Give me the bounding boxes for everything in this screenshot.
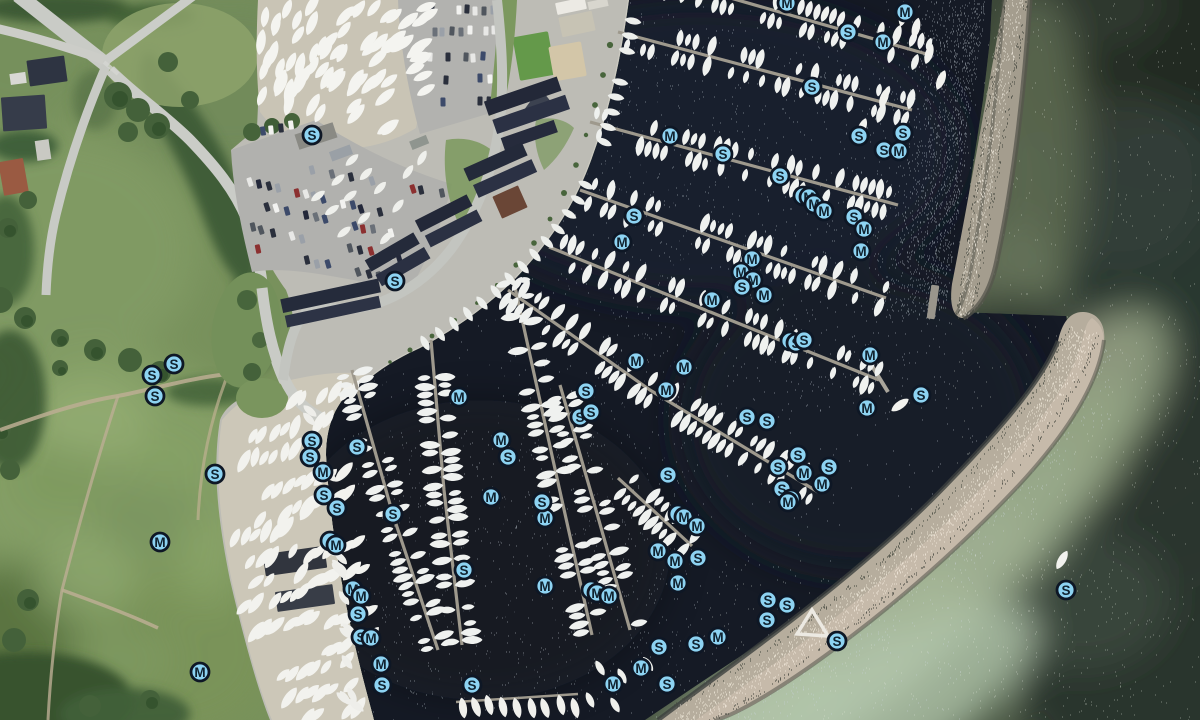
svg-text:S: S <box>799 333 808 348</box>
svg-text:S: S <box>147 368 156 383</box>
svg-text:M: M <box>453 390 464 405</box>
svg-text:M: M <box>355 589 366 604</box>
svg-text:M: M <box>365 631 376 646</box>
svg-text:M: M <box>818 204 829 219</box>
svg-text:S: S <box>737 280 746 295</box>
svg-text:S: S <box>854 129 863 144</box>
svg-text:M: M <box>664 129 675 144</box>
svg-text:S: S <box>782 598 791 613</box>
svg-text:S: S <box>879 143 888 158</box>
svg-text:S: S <box>503 450 512 465</box>
svg-text:M: M <box>691 519 702 534</box>
svg-text:S: S <box>843 25 852 40</box>
svg-text:M: M <box>712 630 723 645</box>
svg-text:S: S <box>662 677 671 692</box>
svg-text:S: S <box>353 607 362 622</box>
svg-text:M: M <box>375 657 386 672</box>
svg-text:M: M <box>603 589 614 604</box>
svg-text:S: S <box>305 450 314 465</box>
svg-text:M: M <box>877 35 888 50</box>
svg-text:M: M <box>816 477 827 492</box>
svg-text:M: M <box>855 244 866 259</box>
svg-text:S: S <box>210 467 219 482</box>
svg-text:M: M <box>317 465 328 480</box>
svg-text:S: S <box>807 80 816 95</box>
svg-text:S: S <box>169 357 178 372</box>
svg-text:S: S <box>332 501 341 516</box>
svg-text:M: M <box>678 360 689 375</box>
svg-text:S: S <box>1061 583 1070 598</box>
svg-text:S: S <box>377 678 386 693</box>
svg-text:S: S <box>654 640 663 655</box>
svg-text:S: S <box>150 389 159 404</box>
svg-text:S: S <box>718 147 727 162</box>
svg-text:S: S <box>693 551 702 566</box>
svg-text:S: S <box>824 460 833 475</box>
svg-text:S: S <box>775 169 784 184</box>
svg-text:M: M <box>330 538 341 553</box>
svg-text:S: S <box>390 274 399 289</box>
svg-text:S: S <box>832 634 841 649</box>
svg-text:S: S <box>742 410 751 425</box>
svg-text:S: S <box>537 495 546 510</box>
svg-text:M: M <box>495 433 506 448</box>
svg-text:M: M <box>893 144 904 159</box>
svg-text:M: M <box>672 576 683 591</box>
svg-text:S: S <box>629 209 638 224</box>
svg-text:S: S <box>898 126 907 141</box>
svg-text:S: S <box>663 468 672 483</box>
svg-text:M: M <box>660 383 671 398</box>
svg-text:M: M <box>864 348 875 363</box>
svg-text:M: M <box>635 661 646 676</box>
svg-text:M: M <box>539 511 550 526</box>
svg-text:M: M <box>607 677 618 692</box>
svg-text:M: M <box>652 544 663 559</box>
svg-text:M: M <box>798 466 809 481</box>
svg-text:M: M <box>154 535 165 550</box>
svg-text:S: S <box>307 434 316 449</box>
svg-text:M: M <box>781 0 792 11</box>
svg-text:S: S <box>319 488 328 503</box>
svg-text:S: S <box>586 405 595 420</box>
svg-text:S: S <box>388 507 397 522</box>
svg-text:M: M <box>706 293 717 308</box>
svg-text:S: S <box>762 613 771 628</box>
svg-text:S: S <box>459 563 468 578</box>
svg-text:S: S <box>763 593 772 608</box>
svg-text:M: M <box>669 554 680 569</box>
svg-text:S: S <box>773 460 782 475</box>
svg-text:S: S <box>307 128 316 143</box>
svg-text:S: S <box>352 440 361 455</box>
svg-text:S: S <box>691 637 700 652</box>
svg-text:S: S <box>581 384 590 399</box>
svg-text:S: S <box>467 678 476 693</box>
svg-text:M: M <box>858 222 869 237</box>
svg-text:M: M <box>782 495 793 510</box>
svg-text:S: S <box>916 388 925 403</box>
svg-text:M: M <box>616 235 627 250</box>
svg-text:M: M <box>539 579 550 594</box>
svg-text:M: M <box>485 490 496 505</box>
svg-text:M: M <box>194 665 205 680</box>
svg-text:M: M <box>630 354 641 369</box>
svg-text:M: M <box>861 401 872 416</box>
svg-text:S: S <box>793 448 802 463</box>
svg-text:M: M <box>758 288 769 303</box>
svg-text:S: S <box>762 414 771 429</box>
svg-text:M: M <box>899 5 910 20</box>
